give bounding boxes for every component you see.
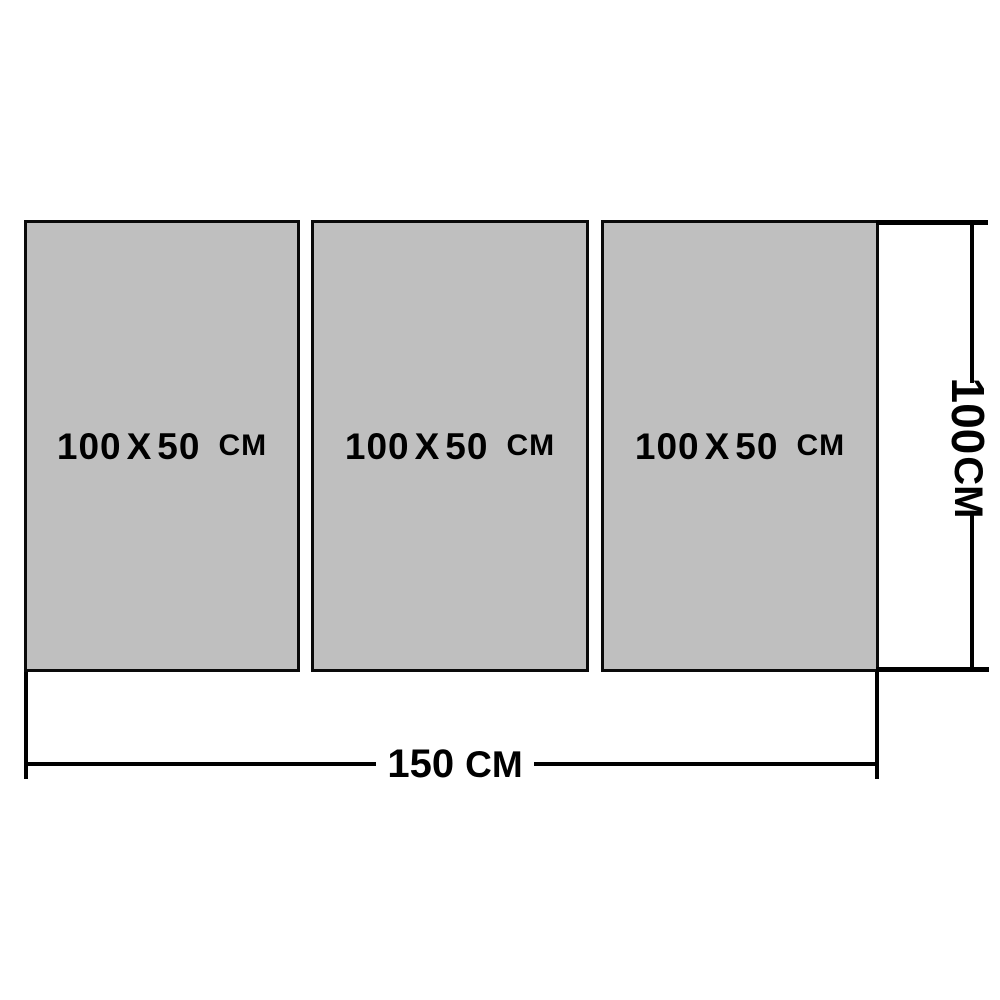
panel-width-value: 50 (157, 428, 200, 465)
height-unit: CM (948, 456, 988, 518)
panel-height-value: 100 (345, 428, 410, 465)
panel-unit: CM (796, 431, 845, 461)
size-diagram: 100X50CM 100X50CM 100X50CM 100CM 150CM (0, 0, 1000, 1000)
panel-height-value: 100 (635, 428, 700, 465)
width-dimension-line-left-segment (26, 762, 376, 766)
multiply-sign: X (705, 428, 731, 465)
panel-2-size-label: 100X50CM (345, 428, 555, 465)
panel-1: 100X50CM (24, 220, 300, 672)
panel-unit: CM (218, 431, 267, 461)
multiply-sign: X (415, 428, 441, 465)
multiply-sign: X (127, 428, 153, 465)
panel-1-size-label: 100X50CM (57, 428, 267, 465)
panel-2: 100X50CM (311, 220, 589, 672)
panel-unit: CM (506, 431, 555, 461)
height-value: 100 (945, 378, 991, 455)
width-value: 150 (387, 744, 454, 784)
panel-width-value: 50 (735, 428, 778, 465)
panel-width-value: 50 (445, 428, 488, 465)
width-dimension-label: 150CM (376, 740, 534, 788)
width-dimension-line-right-segment (534, 762, 876, 766)
height-dimension-label: 100CM (943, 348, 993, 548)
panel-height-value: 100 (57, 428, 122, 465)
panel-3: 100X50CM (601, 220, 879, 672)
panel-3-size-label: 100X50CM (635, 428, 845, 465)
width-unit: CM (465, 746, 523, 783)
